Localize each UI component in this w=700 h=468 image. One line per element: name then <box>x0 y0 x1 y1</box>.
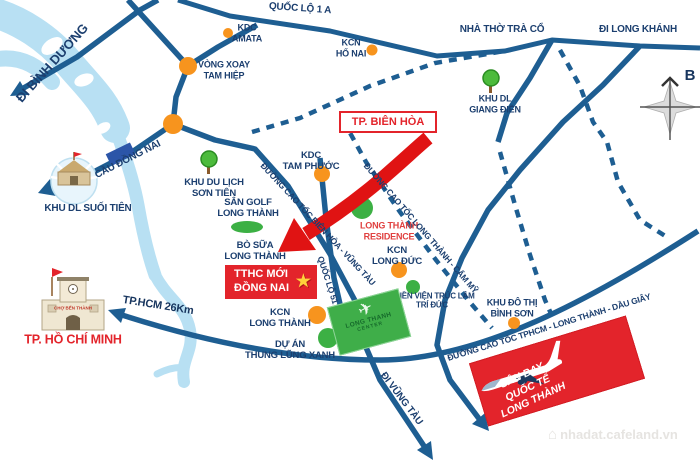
label-long-thanh-residence: LONG THÀNH RESIDENCE <box>360 220 418 241</box>
junction-cau-dong-nai <box>163 114 183 134</box>
ben-thanh-sign: CHỢ BẾN THÀNH <box>54 306 92 311</box>
label-du-an-thung-lung-xanh: DỰ ÁN THUNG LŨNG XANH <box>245 339 335 361</box>
suoi-tien-illustration <box>51 152 97 204</box>
marker-san-golf <box>231 221 263 233</box>
tree-icon-son-tien <box>201 151 217 174</box>
compass-north-label: B <box>685 67 696 85</box>
label-vong-xoay-tam-hiep: VÒNG XOAY TAM HIỆP <box>198 59 250 80</box>
star-icon: ★ <box>296 271 311 292</box>
callout-tthc-text: TTHC MỚI ĐỒNG NAI <box>234 268 289 296</box>
label-bo-sua-long-thanh: BÒ SỮA LONG THÀNH <box>224 240 285 262</box>
label-tp-ho-chi-minh: TP. HỒ CHÍ MINH <box>24 333 121 348</box>
label-di-long-khanh: ĐI LONG KHÁNH <box>599 24 677 36</box>
label-kcn-long-duc: KCN LONG ĐỨC <box>372 245 422 267</box>
label-kdc-amata: KDC AMATA <box>232 22 262 43</box>
house-icon: ⌂ <box>548 427 557 442</box>
dashed-road-east <box>560 50 670 239</box>
map-canvas: ĐI BÌNH DƯƠNG QUỐC LỘ 1 A KDC AMATA KCN … <box>0 0 700 468</box>
ben-thanh-illustration <box>42 268 104 330</box>
label-khu-dl-suoi-tien: KHU DL SUỐI TIÊN <box>44 203 131 215</box>
map-base-graphics <box>0 0 700 468</box>
callout-tp-bien-hoa: TP. BIÊN HÒA <box>339 111 437 133</box>
label-san-golf-long-thanh: SÂN GOLF LONG THÀNH <box>217 197 278 219</box>
label-kcn-ho-nai: KCN HỐ NAI <box>336 37 366 58</box>
watermark-text: nhadat.cafeland.vn <box>560 427 678 442</box>
dashed-road-southeast <box>500 152 552 316</box>
road-tra-co-branch <box>498 40 552 142</box>
label-kdc-tam-phuoc: KDC TAM PHƯỚC <box>283 150 340 172</box>
marker-kcn-long-thanh <box>308 306 326 324</box>
watermark: ⌂ nhadat.cafeland.vn <box>548 427 698 442</box>
label-kcn-long-thanh: KCN LONG THÀNH <box>249 307 310 329</box>
callout-tp-bien-hoa-text: TP. BIÊN HÒA <box>352 116 425 128</box>
marker-kcn-ho-nai <box>367 45 378 56</box>
callout-tthc-moi-dong-nai: TTHC MỚI ĐỒNG NAI ★ <box>225 265 317 299</box>
compass-icon <box>640 78 700 140</box>
arrow-tphcm <box>108 308 126 323</box>
tree-icon-giang-dien <box>483 70 499 93</box>
label-khu-do-thi-binh-son: KHU ĐÔ THỊ BÌNH SƠN <box>487 297 538 318</box>
roundabout-tam-hiep <box>179 57 197 75</box>
marker-binh-son <box>508 317 520 329</box>
label-nha-tho-tra-co: NHÀ THỜ TRÀ CỔ <box>460 24 545 36</box>
label-khu-dl-giang-dien: KHU DL GIANG ĐIỀN <box>469 93 521 114</box>
